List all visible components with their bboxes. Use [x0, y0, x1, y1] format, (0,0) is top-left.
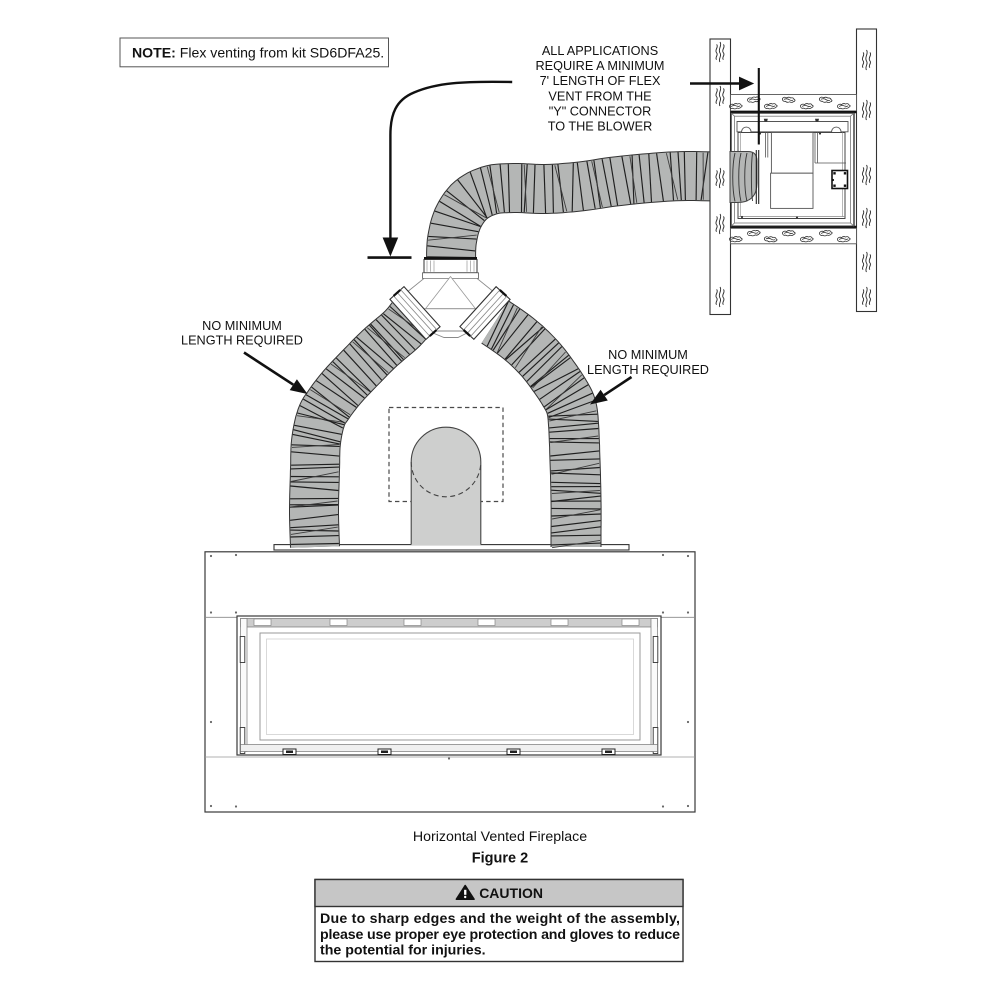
svg-text:NO MINIMUM: NO MINIMUM	[202, 319, 282, 333]
svg-text:NO MINIMUM: NO MINIMUM	[608, 348, 688, 362]
svg-text:LENGTH REQUIRED: LENGTH REQUIRED	[181, 334, 303, 348]
svg-text:Due to sharp edges and the wei: Due to sharp edges and the weight of the…	[320, 911, 680, 927]
svg-text:LENGTH REQUIRED: LENGTH REQUIRED	[587, 363, 709, 377]
svg-text:TO THE BLOWER: TO THE BLOWER	[548, 120, 653, 134]
svg-text:Figure 2: Figure 2	[472, 851, 528, 867]
svg-text:please use proper eye protecti: please use proper eye protection and glo…	[320, 927, 680, 943]
svg-text:the potential for injuries.: the potential for injuries.	[320, 943, 486, 959]
svg-text:"Y" CONNECTOR: "Y" CONNECTOR	[549, 104, 652, 118]
svg-text:Horizontal Vented Fireplace: Horizontal Vented Fireplace	[413, 829, 587, 845]
svg-text:NOTE: Flex venting from kit SD: NOTE: Flex venting from kit SD6DFA25.	[132, 45, 384, 61]
svg-text:7' LENGTH OF FLEX: 7' LENGTH OF FLEX	[540, 74, 661, 88]
svg-text:VENT FROM THE: VENT FROM THE	[548, 89, 651, 103]
svg-text:ALL APPLICATIONS: ALL APPLICATIONS	[542, 44, 658, 58]
svg-text:CAUTION: CAUTION	[479, 885, 543, 901]
svg-text:REQUIRE A MINIMUM: REQUIRE A MINIMUM	[536, 59, 665, 73]
